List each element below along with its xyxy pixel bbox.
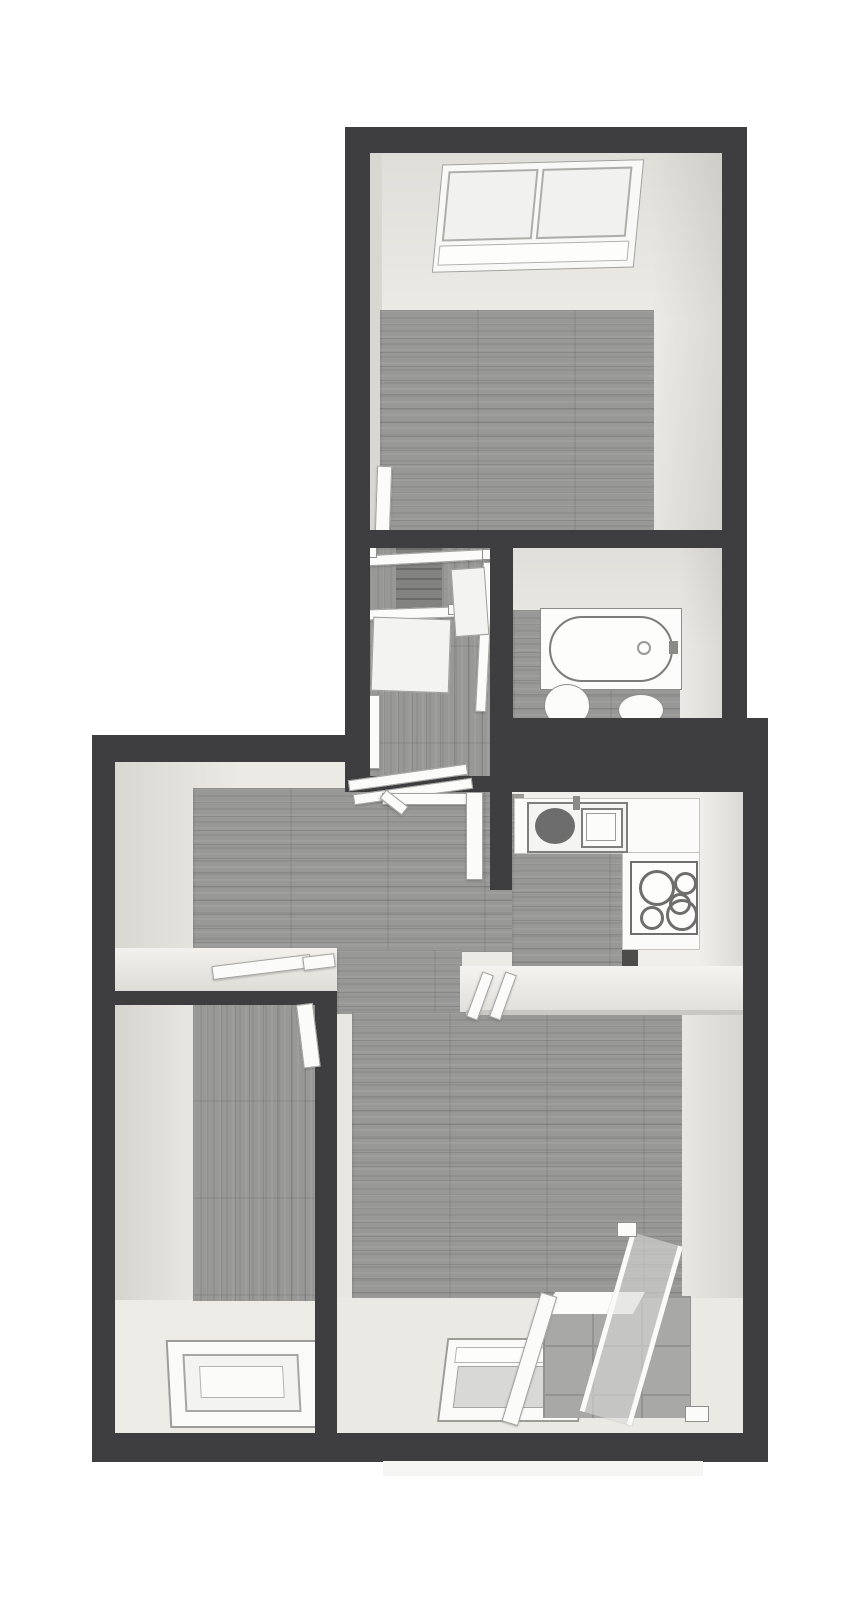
cooktop-burner bbox=[669, 893, 691, 915]
roof-window-left-pane bbox=[199, 1366, 285, 1398]
balcony-railing-post-bottom bbox=[685, 1406, 709, 1422]
stair-railing-panel-large bbox=[371, 617, 452, 694]
balcony-railing bbox=[605, 1222, 710, 1422]
kitchen-roommain-wall-shadow bbox=[466, 1010, 743, 1015]
skylight-pane-left bbox=[442, 169, 539, 242]
stair-railing-panel-small bbox=[451, 567, 490, 637]
entry-door-frame-vertical bbox=[466, 792, 483, 880]
kitchen-sink-basin bbox=[581, 808, 623, 848]
wall-outer-bottom bbox=[92, 1433, 768, 1462]
page: { "scene": { "type": "3d-floorplan-top-d… bbox=[0, 0, 867, 1600]
skylight-window bbox=[432, 159, 644, 273]
roof-window-left bbox=[166, 1340, 323, 1428]
stair-railing-left bbox=[369, 695, 380, 769]
wall-outer-top bbox=[345, 127, 747, 153]
wall-outer-upper-left bbox=[345, 127, 370, 792]
kitchen-sink-unit bbox=[527, 802, 628, 853]
room-top-right-wall-face bbox=[652, 153, 722, 532]
exterior-shadow bbox=[383, 1461, 703, 1476]
balcony-railing-post-top bbox=[617, 1222, 637, 1237]
wall-bath-bottom-band bbox=[490, 718, 768, 792]
wall-roomtop-bottom bbox=[345, 530, 747, 548]
wall-hall-roomleft-edge bbox=[115, 991, 337, 1005]
wall-outer-upper-right bbox=[722, 127, 747, 720]
skylight-pane-right bbox=[536, 167, 633, 240]
cooktop-burner bbox=[674, 872, 697, 895]
floor-plan bbox=[0, 0, 867, 1600]
bathtub-drain bbox=[637, 641, 651, 655]
hallway-passage-floor bbox=[337, 950, 462, 1014]
kitchen-drainboard bbox=[535, 808, 575, 844]
hallway-floor bbox=[193, 788, 512, 952]
cooktop bbox=[630, 861, 698, 935]
kitchen-floor bbox=[512, 850, 624, 970]
bathroom-right-wall-face bbox=[678, 548, 722, 718]
wall-outer-lower-left bbox=[92, 735, 115, 1462]
bathtub-faucet bbox=[669, 641, 678, 654]
kitchen-faucet bbox=[573, 796, 580, 810]
bathtub bbox=[540, 608, 682, 690]
wall-kitchen-stub bbox=[490, 792, 512, 890]
kitchen-sink-inner bbox=[586, 813, 616, 841]
cooktop-burner bbox=[640, 906, 664, 930]
wall-stair-bath-divider bbox=[490, 530, 513, 720]
room-top-floor bbox=[380, 310, 654, 532]
room-top-door-leaf bbox=[375, 466, 392, 534]
room-left-floor bbox=[193, 1003, 317, 1301]
wall-lower-top bbox=[92, 735, 370, 762]
skylight-sill bbox=[437, 241, 629, 266]
bathtub-basin bbox=[549, 616, 673, 682]
wall-outer-lower-right bbox=[743, 762, 768, 1462]
